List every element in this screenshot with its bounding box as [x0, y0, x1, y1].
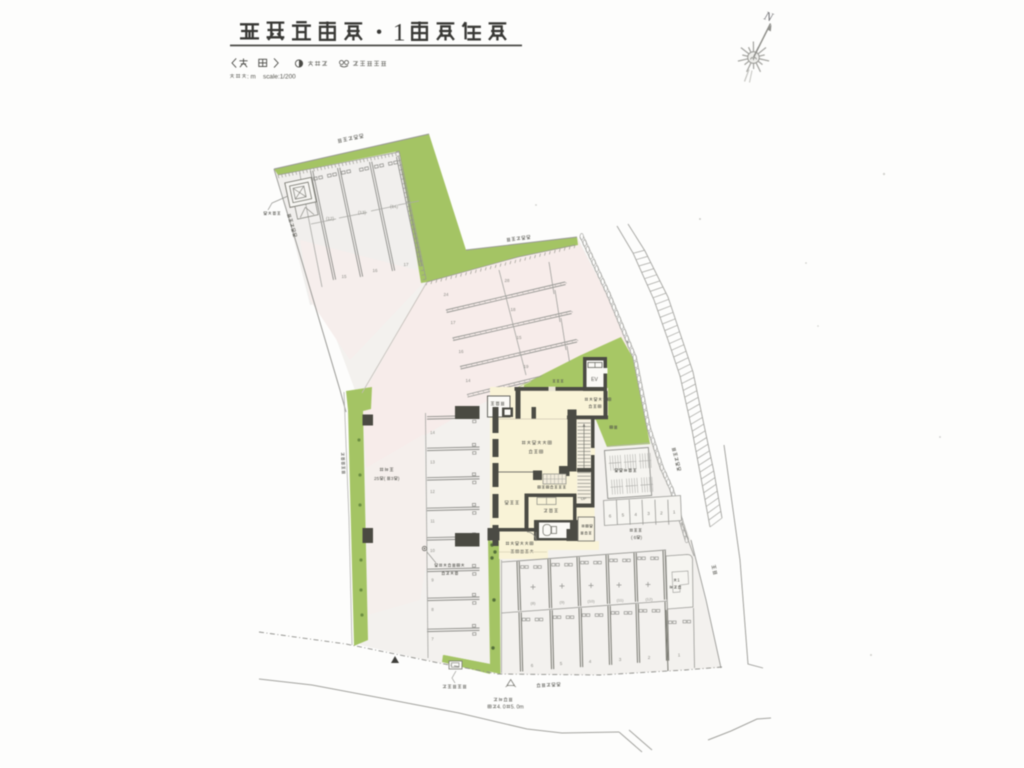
svg-text:15: 15: [516, 335, 522, 340]
svg-text:(9): (9): [560, 600, 566, 605]
svg-text:14: 14: [430, 430, 435, 435]
svg-text:17: 17: [450, 320, 456, 325]
svg-text:3: 3: [619, 657, 622, 662]
svg-text:1: 1: [673, 510, 676, 515]
svg-text:13: 13: [430, 460, 435, 465]
svg-text:scale:1/200: scale:1/200: [263, 74, 296, 81]
svg-text:14: 14: [465, 378, 471, 383]
svg-text:1: 1: [678, 653, 681, 658]
svg-text:(12): (12): [326, 216, 335, 221]
svg-text:17: 17: [403, 262, 409, 267]
svg-text:4: 4: [589, 659, 592, 664]
svg-text:(8): (8): [531, 601, 537, 606]
svg-text:24: 24: [443, 292, 449, 297]
svg-text:4: 4: [634, 512, 637, 517]
svg-text:6: 6: [609, 514, 612, 519]
svg-text:28: 28: [504, 278, 510, 283]
svg-text:(12): (12): [645, 597, 653, 602]
svg-text:3: 3: [647, 511, 650, 516]
svg-text:m: m: [519, 704, 523, 710]
svg-text:(13): (13): [358, 210, 367, 215]
svg-text:2: 2: [660, 510, 663, 515]
svg-text:11: 11: [430, 519, 435, 524]
svg-text:.: .: [514, 704, 515, 710]
svg-text:5: 5: [377, 476, 380, 481]
svg-text:2: 2: [648, 655, 651, 660]
svg-text:.: .: [500, 704, 501, 710]
svg-text:1: 1: [393, 18, 406, 47]
svg-text:3: 3: [391, 476, 394, 481]
svg-text:19: 19: [523, 364, 529, 369]
svg-text:UP: UP: [581, 496, 587, 501]
svg-text:0: 0: [503, 704, 506, 710]
svg-text:10: 10: [430, 548, 435, 553]
svg-text:(14): (14): [390, 204, 399, 209]
svg-text:5: 5: [560, 661, 563, 666]
svg-text:EV: EV: [591, 377, 598, 383]
svg-text:16: 16: [372, 268, 378, 273]
svg-text:12: 12: [430, 489, 435, 494]
svg-text:15: 15: [341, 274, 347, 279]
svg-text:18: 18: [510, 307, 516, 312]
svg-text::: :: [247, 73, 249, 80]
svg-text:6: 6: [531, 663, 534, 668]
svg-text:16: 16: [458, 349, 464, 354]
svg-text:5: 5: [622, 513, 625, 518]
svg-text:m: m: [251, 73, 256, 80]
svg-text:6: 6: [634, 535, 637, 540]
svg-text:(10): (10): [587, 599, 595, 604]
svg-text:(11): (11): [617, 598, 624, 603]
